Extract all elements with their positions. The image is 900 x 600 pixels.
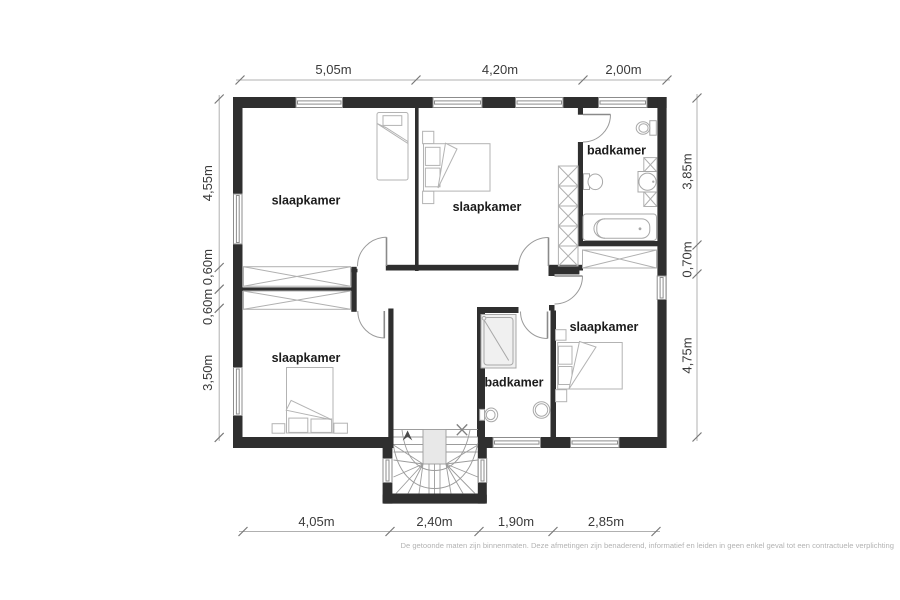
svg-text:0,70m: 0,70m xyxy=(680,241,695,277)
svg-text:slaapkamer: slaapkamer xyxy=(453,200,522,214)
svg-text:1,90m: 1,90m xyxy=(498,514,534,529)
svg-text:slaapkamer: slaapkamer xyxy=(272,351,341,365)
svg-text:2,85m: 2,85m xyxy=(588,514,624,529)
svg-text:badkamer: badkamer xyxy=(587,144,646,158)
svg-text:badkamer: badkamer xyxy=(484,376,543,390)
svg-text:2,00m: 2,00m xyxy=(605,62,641,77)
svg-text:De getoonde maten zijn binnenm: De getoonde maten zijn binnenmaten. Deze… xyxy=(401,541,895,550)
svg-text:4,05m: 4,05m xyxy=(298,514,334,529)
svg-text:2,40m: 2,40m xyxy=(416,514,452,529)
svg-text:0,60m 0,60m: 0,60m 0,60m xyxy=(200,249,215,325)
svg-text:slaapkamer: slaapkamer xyxy=(570,320,639,334)
svg-text:3,85m: 3,85m xyxy=(680,153,695,189)
svg-text:4,20m: 4,20m xyxy=(482,62,518,77)
svg-text:4,55m: 4,55m xyxy=(200,165,215,201)
svg-text:5,05m: 5,05m xyxy=(315,62,351,77)
svg-text:3,50m: 3,50m xyxy=(200,355,215,391)
svg-text:4,75m: 4,75m xyxy=(680,337,695,373)
svg-text:slaapkamer: slaapkamer xyxy=(272,194,341,208)
